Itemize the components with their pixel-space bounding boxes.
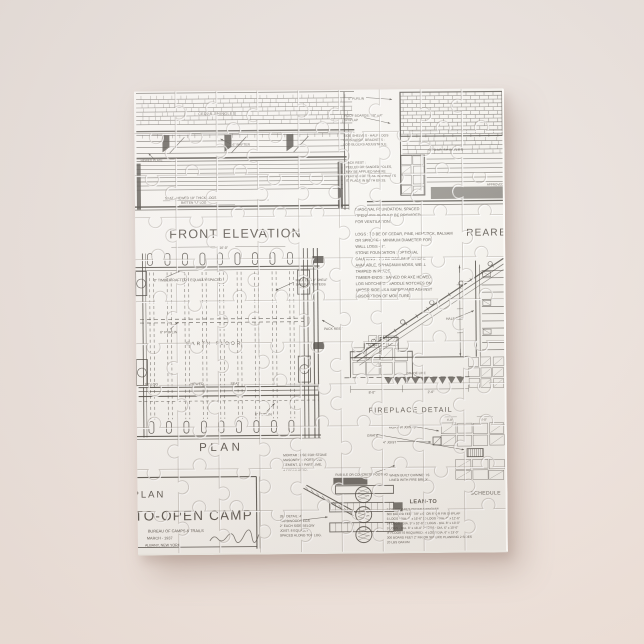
front-dim-label: 16'-0" xyxy=(219,246,228,250)
front-seat-note-line2: BATTEN "U" LOG xyxy=(181,201,207,205)
title-block-plan-label: PLAN xyxy=(134,489,165,500)
plan-shelf-note: HALF LOG 8" SHELFSHELF WITH PEGS xyxy=(296,278,328,287)
plan-purlin-label-a: 6" PURLIN xyxy=(160,330,178,334)
plan-title: PLAN xyxy=(199,442,244,454)
rear-elevation-title-cut: ELEVATION xyxy=(499,227,506,239)
blueprint-artwork: CEDAR SHINGLES 6" RAFTER HEWED PLATE SEA… xyxy=(134,88,506,553)
title-block-place: ALBANY, NEW YORK xyxy=(145,543,181,547)
purlin-note: 4" PURLIN xyxy=(348,97,365,101)
fireplace-dim-a: 4'-0" xyxy=(447,418,453,422)
front-elevation-title: FRONT ELEVATION xyxy=(169,226,302,241)
fireplace-detail-title: FIREPLACE DETAIL xyxy=(369,407,453,415)
approved-stamp-partial: APPROVED xyxy=(487,182,505,186)
joist-label: 4" JOIST xyxy=(383,440,396,444)
plan-pack-rest-label: PACK REST xyxy=(324,327,342,331)
front-plate-label: HEWED PLATE xyxy=(141,158,163,162)
product-photo-scene: CEDAR SHINGLES 6" RAFTER HEWED PLATE SEA… xyxy=(0,0,644,644)
rear-cedar-shingles-label: CEDAR SHINGLES xyxy=(428,148,463,152)
fireplace-dim-right: 2'-6" xyxy=(428,390,436,394)
title-block-date: MARCH - 1937 xyxy=(147,536,173,540)
jigsaw-puzzle: CEDAR SHINGLES 6" RAFTER HEWED PLATE SEA… xyxy=(134,88,508,555)
fireplace-dim-left: 8'-0" xyxy=(369,391,377,395)
title-block-bureau: BUREAU OF CAMPS & TRAILS xyxy=(148,528,204,533)
front-rafter-label: 6" RAFTER xyxy=(232,143,250,147)
schedule-label: SCHEDULE xyxy=(470,490,501,496)
